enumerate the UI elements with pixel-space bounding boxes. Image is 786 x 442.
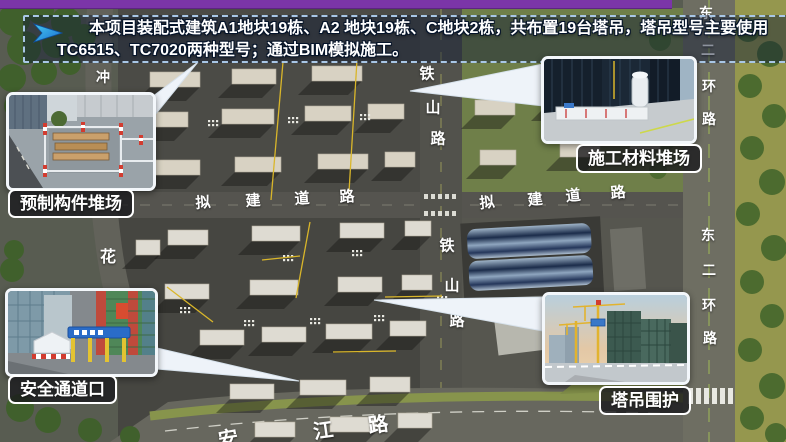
material-yard-photo-art xyxy=(544,59,694,141)
top-purple-bar xyxy=(0,0,672,9)
safety-passage-photo-art xyxy=(8,291,155,374)
bim-site-plan-slide: 铁山路铁山路拟建道路拟建道路东二环路东二环路花冲安江路 本项目装配式建筑A1地块… xyxy=(0,0,786,442)
material-yard-label: 施工材料堆场 xyxy=(576,144,702,173)
material-yard-photo xyxy=(541,56,697,144)
safety-passage-label: 安全通道口 xyxy=(8,375,117,404)
crane-enclosure-label: 塔吊围护 xyxy=(599,386,691,415)
precast-yard-photo xyxy=(6,92,156,191)
crane-enclosure-photo xyxy=(542,292,690,385)
crane-enclosure-photo-art xyxy=(545,295,687,382)
banner-line-1: 本项目装配式建筑A1地块19栋、A2 地块19栋、C地块2栋，共布置19台塔吊，… xyxy=(25,18,786,40)
steel-shed-building xyxy=(460,216,604,299)
safety-passage-photo xyxy=(5,288,158,377)
precast-yard-label: 预制构件堆场 xyxy=(8,189,134,218)
precast-yard-photo-art xyxy=(9,95,153,188)
